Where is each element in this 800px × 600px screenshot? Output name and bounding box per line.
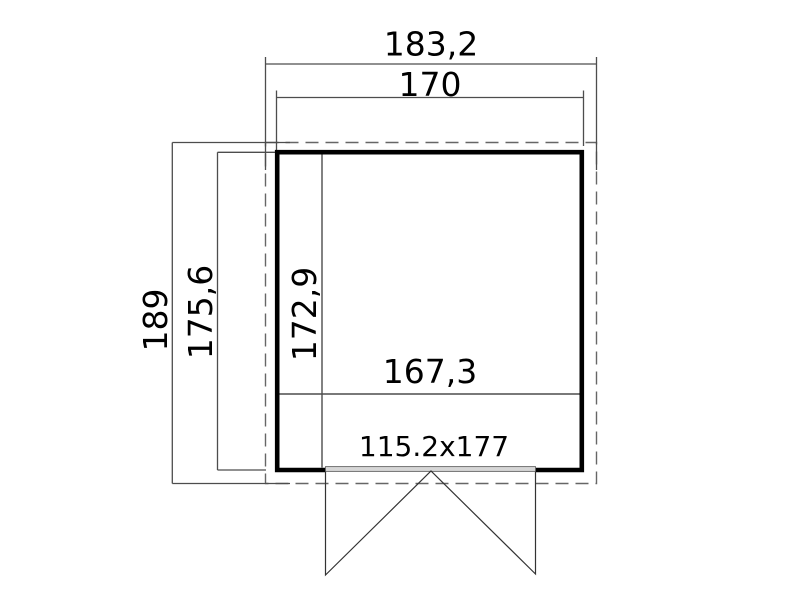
- interior-lines: [280, 155, 580, 468]
- label-overall-depth: 189: [136, 289, 175, 352]
- label-interior-width: 167,3: [383, 352, 477, 391]
- dimension-lines: [172, 57, 596, 484]
- label-wall-width: 170: [399, 65, 462, 104]
- label-wall-depth: 175,6: [181, 265, 220, 359]
- label-door-size: 115.2x177: [359, 430, 509, 463]
- label-overall-width: 183,2: [384, 25, 478, 64]
- label-interior-depth: 172,9: [285, 267, 324, 361]
- floor-plan-drawing: 183,2 170 189 175,6 172,9 167,3 115.2x17…: [0, 0, 800, 600]
- door-swing: [326, 471, 536, 575]
- floor-plan-canvas: 183,2 170 189 175,6 172,9 167,3 115.2x17…: [0, 0, 800, 600]
